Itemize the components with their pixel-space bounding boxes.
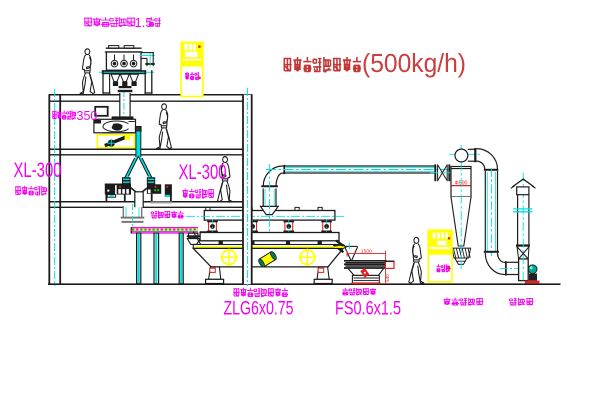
svg-text:1500: 1500 <box>361 249 372 254</box>
svg-text:350: 350 <box>77 109 98 123</box>
svg-text:XL-300: XL-300 <box>179 161 227 184</box>
svg-text:FS0.6x1.5: FS0.6x1.5 <box>335 298 401 320</box>
svg-text:540: 540 <box>385 274 390 282</box>
svg-text:XL-300: XL-300 <box>14 159 62 182</box>
svg-text:ZLG6x0.75: ZLG6x0.75 <box>224 298 294 320</box>
svg-text:(500kg/h): (500kg/h) <box>362 50 466 78</box>
